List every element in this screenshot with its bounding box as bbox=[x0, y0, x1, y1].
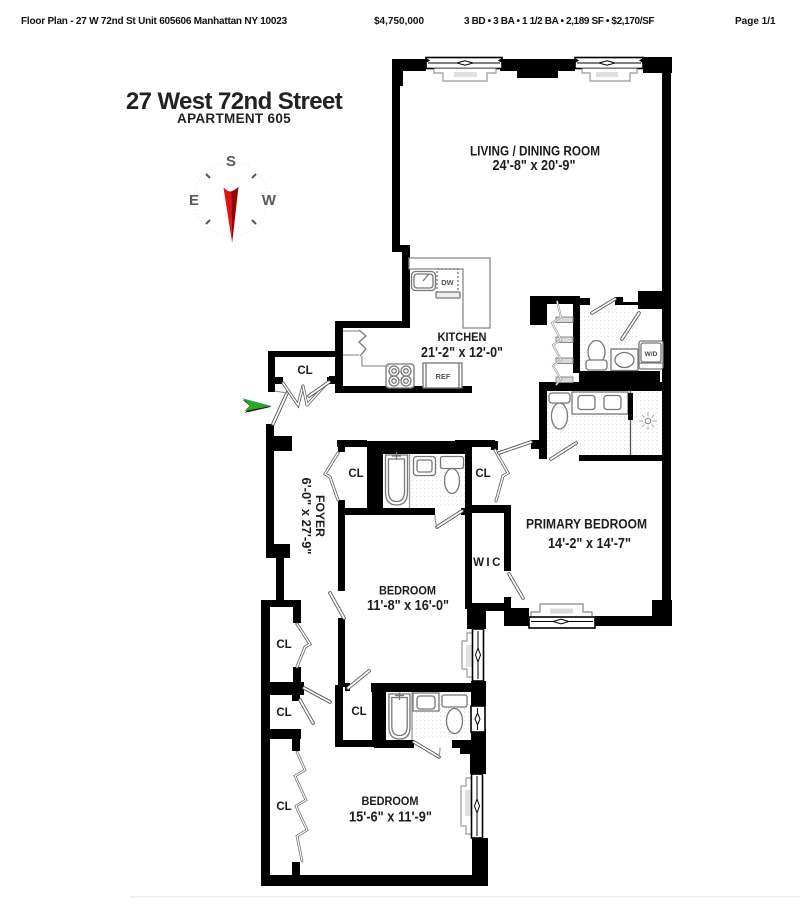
svg-text:CL: CL bbox=[475, 468, 490, 480]
svg-text:WIC: WIC bbox=[473, 557, 503, 569]
svg-text:LIVING / DINING ROOM: LIVING / DINING ROOM bbox=[470, 144, 600, 159]
svg-text:BEDROOM: BEDROOM bbox=[379, 586, 436, 598]
svg-text:Page 1/1: Page 1/1 bbox=[735, 16, 776, 27]
svg-text:15'-6" x 11'-9": 15'-6" x 11'-9" bbox=[349, 810, 432, 826]
svg-text:CL: CL bbox=[348, 468, 363, 480]
svg-text:$4,750,000: $4,750,000 bbox=[374, 16, 424, 27]
svg-text:REF: REF bbox=[436, 372, 451, 381]
svg-text:CL: CL bbox=[276, 707, 291, 719]
svg-text:11'-8" x 16'-0": 11'-8" x 16'-0" bbox=[367, 598, 449, 614]
svg-text:APARTMENT 605: APARTMENT 605 bbox=[177, 111, 291, 126]
svg-text:Floor Plan - 27 W 72nd St Unit: Floor Plan - 27 W 72nd St Unit 605606 Ma… bbox=[21, 16, 288, 27]
svg-text:14'-2" x 14'-7": 14'-2" x 14'-7" bbox=[548, 536, 631, 552]
svg-text:BEDROOM: BEDROOM bbox=[362, 796, 419, 808]
svg-text:CL: CL bbox=[297, 365, 312, 377]
svg-text:E: E bbox=[189, 192, 199, 209]
svg-text:24'-8" x 20'-9": 24'-8" x 20'-9" bbox=[493, 158, 576, 174]
svg-text:PRIMARY BEDROOM: PRIMARY BEDROOM bbox=[526, 517, 647, 532]
svg-text:CL: CL bbox=[276, 639, 291, 651]
svg-text:W: W bbox=[262, 192, 277, 209]
svg-text:S: S bbox=[226, 153, 236, 170]
svg-text:CL: CL bbox=[276, 801, 291, 813]
svg-text:W/D: W/D bbox=[645, 351, 658, 358]
svg-text:DW: DW bbox=[441, 278, 454, 287]
svg-text:6'-0" x 27'-9": 6'-0" x 27'-9" bbox=[299, 478, 314, 555]
svg-text:21'-2" x 12'-0": 21'-2" x 12'-0" bbox=[421, 345, 503, 361]
svg-text:KITCHEN: KITCHEN bbox=[438, 332, 487, 344]
svg-text:CL: CL bbox=[351, 706, 366, 718]
svg-text:3 BD • 3 BA • 1 1/2 BA • 2,189: 3 BD • 3 BA • 1 1/2 BA • 2,189 SF • $2,1… bbox=[464, 16, 654, 27]
